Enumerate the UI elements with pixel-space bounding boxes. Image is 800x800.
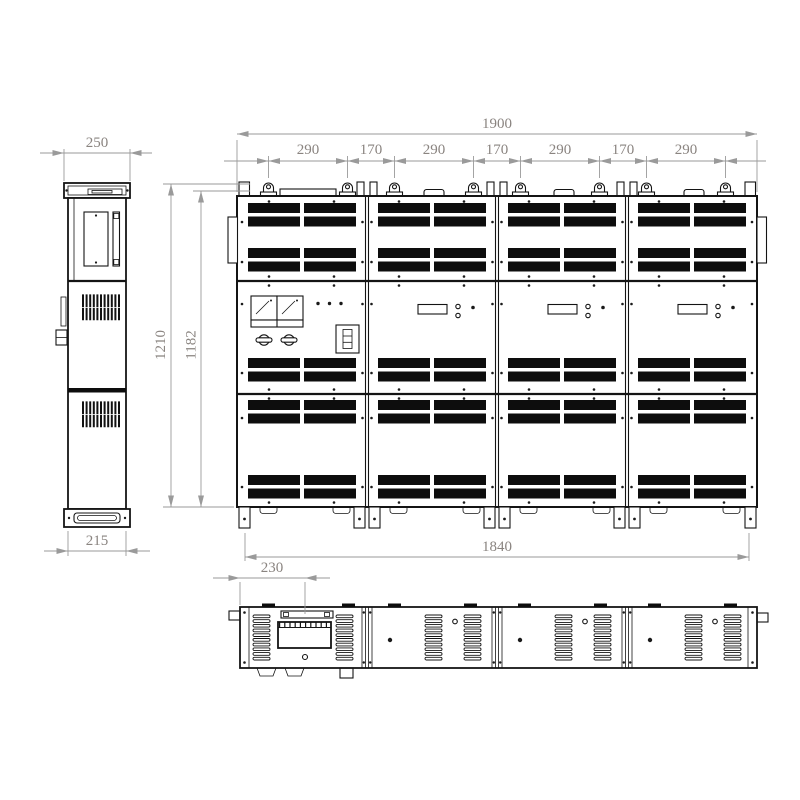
bottom-left-tab — [229, 611, 240, 620]
dim-label-seg-1: 290 — [297, 142, 320, 158]
dim-front-bottom-width: 1840 — [245, 533, 749, 561]
technical-drawing-sheet: 250 215 1900 — [0, 0, 800, 800]
front-feet — [239, 507, 756, 528]
dim-label-230: 230 — [261, 560, 284, 576]
side-body — [68, 198, 126, 509]
analog-meter-right — [277, 296, 303, 320]
terminal-box — [278, 622, 331, 648]
dim-label-seg-7: 290 — [675, 142, 698, 158]
dim-label-1210: 1210 — [153, 330, 169, 360]
dim-side-top-width: 250 — [40, 135, 152, 181]
dim-label-seg-4: 170 — [486, 142, 509, 158]
dim-side-bottom-width: 215 — [44, 531, 150, 556]
dim-label-1840: 1840 — [482, 539, 512, 555]
side-hinge — [61, 297, 66, 326]
dim-label-250: 250 — [86, 135, 109, 151]
bottom-view — [229, 604, 768, 679]
dim-label-seg-3: 290 — [423, 142, 446, 158]
dim-front-segments: 290 170 290 170 290 170 290 — [224, 142, 766, 178]
bottom-right-tab — [757, 613, 768, 622]
front-view — [228, 182, 767, 528]
dim-label-seg-2: 170 — [360, 142, 383, 158]
dim-label-1900: 1900 — [482, 116, 512, 132]
side-view — [56, 183, 130, 527]
dim-label-seg-6: 170 — [612, 142, 635, 158]
analog-meter-left — [251, 296, 277, 320]
front-roof-cap-wide — [280, 189, 336, 196]
front-left-flange — [228, 217, 238, 263]
dim-label-seg-5: 290 — [549, 142, 572, 158]
front-enclosure — [237, 196, 757, 507]
front-right-flange — [757, 217, 767, 263]
cabinet-three-view-drawing: 250 215 1900 — [0, 0, 800, 800]
dim-label-215: 215 — [86, 533, 109, 549]
dim-label-1182: 1182 — [184, 330, 200, 359]
front-top-fittings — [239, 182, 756, 196]
